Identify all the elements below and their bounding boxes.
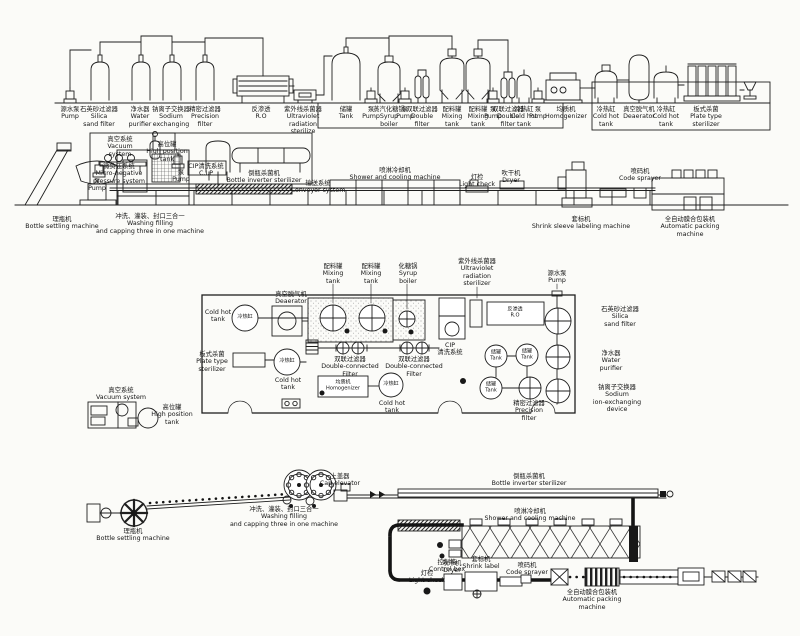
bottle-inverter-bar xyxy=(196,184,292,194)
label-high-pos-plan: 高位罐 High position tank xyxy=(151,404,192,426)
label-plate-sterilizer: 板式杀菌 Plate type sterilizer xyxy=(690,106,722,128)
label-shrink-2: 套标机 Shrink label xyxy=(462,556,499,571)
label-light-check-2: 灯检 Light check xyxy=(409,570,445,585)
label-cap-elevator: 上盖器 Cap elevator xyxy=(320,473,360,488)
code-sprayer-shape xyxy=(634,188,646,198)
shrink-plan-shape xyxy=(465,572,497,598)
double-filter-plan-shapes xyxy=(318,342,439,354)
label-cold-hot-left-en: Cold hot tank xyxy=(205,309,231,324)
label-precision-plan: 精密过滤器 Precision filter xyxy=(513,400,544,422)
label-packing-2: 全自动膜合包装机 Automatic packing machine xyxy=(563,589,622,611)
label-code-sprayer-1: 喷码机 Code sprayer xyxy=(619,168,661,183)
label-tank-circle-2: 储罐 Tank xyxy=(521,349,533,360)
label-washing-2: 冲洗、灌装、封口三合一 Washing filling and capping … xyxy=(230,506,338,528)
label-shrink-labeling: 套标机 Shrink sleeve labeling machine xyxy=(532,216,630,231)
control-box-shape xyxy=(437,540,461,559)
label-dryer-1: 吹干机 Dryer xyxy=(502,170,521,185)
label-water-purifier: 净水器 Water purifier xyxy=(129,106,152,128)
label-tank-circle-1: 储罐 Tank xyxy=(490,350,502,361)
label-cold-hot-right: 冷热缸 xyxy=(383,382,398,388)
label-cip-plan: CIP 清洗系统 xyxy=(437,342,462,357)
label-precision-filter: 精密过滤器 Precision filter xyxy=(189,106,220,128)
label-light-check-1: 灯检 Light check xyxy=(459,174,495,189)
label-vacuum-system: 真空系统 Vacuum system xyxy=(107,136,132,158)
label-ro-box: 反渗透 R.O xyxy=(507,307,522,318)
label-source-pump-plan: 源水泵 Pump xyxy=(548,270,567,285)
syrup-boiler-shape xyxy=(378,50,400,103)
label-cold-hot-left: 冷热缸 xyxy=(237,315,252,321)
cip-vessel-shape xyxy=(232,148,310,163)
label-homogenizer-box: 均质机 Homogenizer xyxy=(326,380,360,391)
label-plate-plan: 板式杀菌 Plate type sterilizer xyxy=(196,351,228,373)
label-shower-cooling-1: 喷淋冷却机 Shower and cooling machine xyxy=(349,167,440,182)
conveyor-line xyxy=(110,188,655,191)
deaerator-shape xyxy=(629,55,649,103)
double-filter-shape xyxy=(415,70,429,103)
label-high-position-tank: 高位罐 High position tank xyxy=(146,141,187,163)
label-auto-packing-1: 全自动膜合包装机 Automatic packing machine xyxy=(661,216,720,238)
mixing-tank-shape xyxy=(389,36,508,103)
label-settling-2: 理瓶机 Bottle settling machine xyxy=(96,528,169,543)
packing-machine-shape xyxy=(652,170,724,210)
label-dbl-filter-plan-1: 双联过滤器 Double-connected Filter xyxy=(321,356,379,378)
label-syrup-plan: 化糖锅 Syrup boiler xyxy=(399,263,418,285)
dryer-plan-shape xyxy=(444,574,462,590)
label-reverse-osmosis: 反渗透 R.O xyxy=(252,106,271,121)
label-silica-sand-filter: 石英砂过滤器 Silica sand filter xyxy=(80,106,118,128)
label-dryer-2: 吹干机 Dryer xyxy=(443,560,462,575)
plate-plan-shape xyxy=(233,353,265,367)
label-cold-hot-mid: 冷热缸 xyxy=(279,359,294,365)
label-vacuum-plan: 真空系统 Vacuum system xyxy=(96,387,146,402)
uv-sterilizer-unit xyxy=(294,90,316,103)
uv-plan-shape xyxy=(470,300,482,327)
deaerator-plan-shape xyxy=(272,306,308,336)
cap-elevator-shape xyxy=(334,490,347,501)
water-train-plan xyxy=(545,291,571,404)
label-deaerator-plan: 真空脱气机 Deaerator xyxy=(275,291,307,306)
label-pump-7: 泵 Pump xyxy=(172,169,190,184)
label-double-filter-1: 双联过滤器 Double filter xyxy=(406,106,437,128)
label-uv-plan: 紫外线杀菌器 Ultraviolet radiation sterilizer xyxy=(458,258,496,287)
plate-sterilizer-shape xyxy=(678,64,740,101)
label-mixing-plan-1: 配料罐 Mixing tank xyxy=(323,263,344,285)
label-mixing-plan-2: 配料罐 Mixing tank xyxy=(361,263,382,285)
label-pump-6: 泵 Pump xyxy=(88,178,106,193)
label-storage-tank: 储罐 Tank xyxy=(339,106,353,121)
cold-hot-tank-shape xyxy=(517,70,531,103)
label-tank-circle-3: 储罐 Tank xyxy=(485,382,497,393)
shower-cooling-shape xyxy=(330,180,460,205)
settler-plan-shape xyxy=(87,500,147,526)
label-source-pump: 源水泵 Pump xyxy=(61,106,80,121)
reverse-osmosis-unit xyxy=(233,76,293,103)
label-cip-system: CIP清洗系统 C.I.P xyxy=(188,163,223,178)
label-homogenizer: 均质机 Homogenizer xyxy=(545,106,587,121)
pump-icon xyxy=(64,88,76,103)
label-deaerator: 真空脱气机 Deaerator xyxy=(623,106,655,121)
label-inverter-2: 倒瓶杀菌机 Bottle inverter sterilizer xyxy=(492,473,567,488)
label-sodium-plan: 钠离子交换器 Sodium ion-exchanging device xyxy=(593,384,641,413)
label-cold-hot-mid-en: Cold hot tank xyxy=(275,377,301,392)
label-sodium-exchanger: 钠离子交换器 Sodium exchanging xyxy=(152,106,190,128)
label-conveyor-system: 输送系统 Conveyor system xyxy=(291,180,346,195)
cip-plan-shape xyxy=(439,298,465,339)
label-water-purifier-plan: 净水器 Water purifier xyxy=(600,350,623,372)
light-check-plan-shape xyxy=(424,588,431,595)
label-bottle-settling-1: 理瓶机 Bottle settling machine xyxy=(25,216,98,231)
label-shower-2: 喷淋冷却机 Shower and cooling machine xyxy=(484,508,575,523)
label-cold-hot-right-en: Cold hot tank xyxy=(379,400,405,415)
label-silica-plan: 石英砂过滤器 Silica sand filter xyxy=(601,306,639,328)
label-cold-hot-tank-3: 冷热缸 Cold hot tank xyxy=(653,106,679,128)
label-cold-hot-tank-2: 冷热缸 Cold hot tank xyxy=(593,106,619,128)
label-code-2: 喷码机 Code sprayer xyxy=(506,562,548,577)
inverter-plan-bar xyxy=(398,489,658,497)
shrink-labeler-shape xyxy=(558,162,592,207)
label-washing-filling-1: 冲洗、灌装、封口三合一 Washing filling and capping … xyxy=(96,213,204,235)
storage-tank-shape xyxy=(332,53,360,100)
vacuum-plan-shape xyxy=(88,402,138,428)
label-mixing-tank-1: 配料罐 Mixing tank xyxy=(442,106,463,128)
production-line-diagram: 源水泵 Pump石英砂过滤器 Silica sand filter净水器 Wat… xyxy=(0,0,800,636)
homogenizer-shape xyxy=(544,73,582,103)
packing-plan-shape xyxy=(551,568,758,586)
label-dbl-filter-plan-2: 双联过滤器 Double-connected Filter xyxy=(385,356,443,378)
label-uv-sterilizer: 紫外线杀菌器 Ultraviolet radiation sterilize xyxy=(284,106,322,135)
